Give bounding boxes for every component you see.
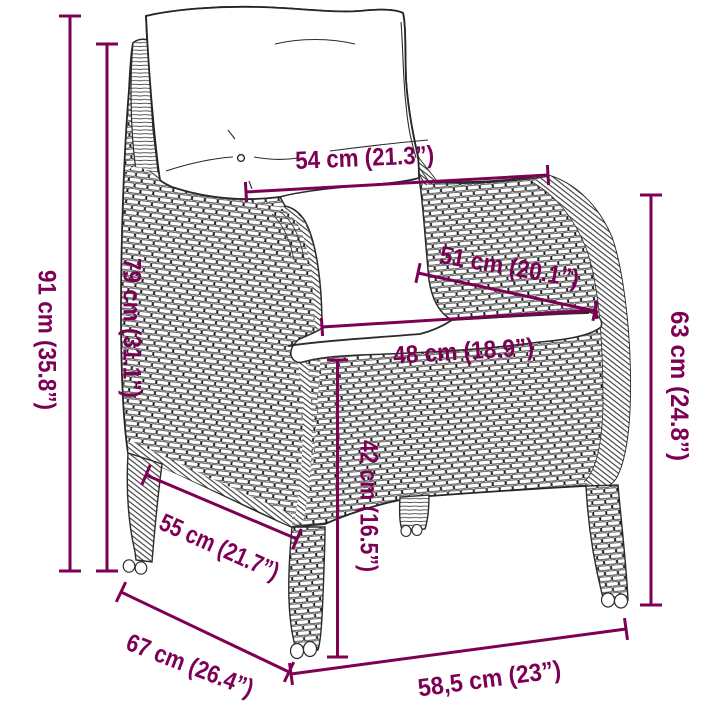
svg-text:91 cm (35.8”): 91 cm (35.8”) [33, 270, 61, 410]
svg-text:63 cm (24.8”): 63 cm (24.8”) [665, 311, 693, 461]
svg-text:79 cm (31.1”): 79 cm (31.1”) [118, 258, 146, 398]
svg-text:42 cm (16.5”): 42 cm (16.5”) [355, 440, 383, 572]
